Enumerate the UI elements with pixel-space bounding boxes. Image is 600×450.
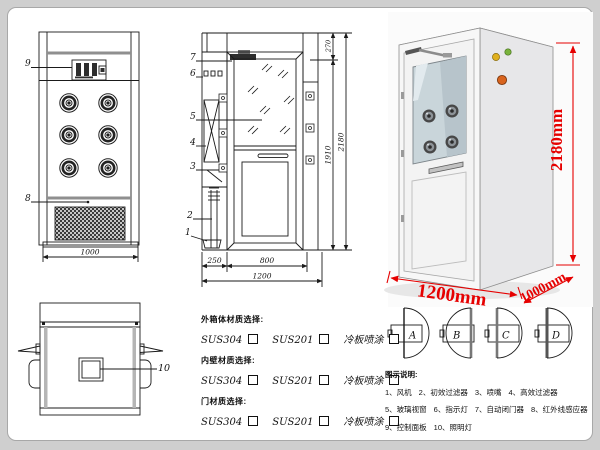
material-checkbox[interactable] bbox=[319, 375, 329, 385]
front-base bbox=[43, 242, 138, 247]
dim-inner-height: 1910 bbox=[324, 145, 333, 164]
dim-top-section: 270 bbox=[325, 40, 333, 53]
material-checkbox[interactable] bbox=[248, 375, 258, 385]
legend-row: 9、控制面板10、照明灯 bbox=[385, 422, 590, 433]
legend-item: 4、高效过滤器 bbox=[509, 388, 558, 397]
filter-box bbox=[204, 100, 219, 162]
callout-5: 5 bbox=[190, 112, 196, 122]
air-return-grille bbox=[55, 207, 125, 240]
dim-door-width: 800 bbox=[260, 256, 275, 265]
material-option-label: 冷板喷涂 bbox=[343, 417, 383, 428]
material-option-label: SUS304 bbox=[201, 417, 242, 428]
left-handle bbox=[29, 360, 40, 388]
dim-total-width: 1200 bbox=[252, 272, 271, 281]
callout-6: 6 bbox=[190, 69, 196, 79]
material-option-label: SUS201 bbox=[272, 335, 313, 346]
callout-4: 4 bbox=[189, 138, 196, 148]
legend-item: 10、照明灯 bbox=[434, 423, 472, 432]
callout-3: 3 bbox=[190, 162, 196, 172]
door-option-b: B bbox=[440, 308, 474, 358]
material-checkbox[interactable] bbox=[248, 334, 258, 344]
emergency-button bbox=[497, 75, 506, 84]
legend-item: 8、红外线感应器 bbox=[531, 405, 588, 414]
door-option-c: C bbox=[485, 308, 522, 358]
front-view: 9 8 1000 bbox=[25, 32, 139, 262]
indicator-lamp-yellow bbox=[492, 53, 499, 60]
material-option-label: 冷板喷涂 bbox=[343, 335, 383, 346]
top-view: 10 bbox=[18, 303, 170, 415]
legend-row: 5、玻璃视窗6、指示灯7、自动闭门器8、红外线感应器 bbox=[385, 404, 590, 415]
material-checkbox[interactable] bbox=[319, 334, 329, 344]
door-option-a-label: A bbox=[408, 331, 416, 342]
callout-8: 8 bbox=[25, 194, 31, 204]
duct-pipe bbox=[208, 188, 220, 248]
height-dimensions: 270 1910 2180 bbox=[310, 33, 352, 250]
legend-item: 3、喷嘴 bbox=[475, 388, 502, 397]
door bbox=[227, 52, 303, 250]
callout-7: 7 bbox=[190, 53, 196, 63]
material-option-label: 冷板喷涂 bbox=[343, 376, 383, 387]
legend: 图示说明: 1、风机2、初效过滤器3、喷嘴4、高效过滤器 5、玻璃视窗6、指示灯… bbox=[385, 369, 590, 433]
material-options-row: SUS304SUS201冷板喷涂 bbox=[201, 372, 381, 387]
legend-item: 2、初效过滤器 bbox=[419, 388, 468, 397]
dim-total-height: 2180 bbox=[337, 132, 346, 152]
material-checkbox[interactable] bbox=[248, 416, 258, 426]
material-checkbox[interactable] bbox=[389, 334, 399, 344]
material-option-label: SUS201 bbox=[272, 376, 313, 387]
side-section-view: 7 6 5 4 3 2 1 270 1910 2180 bbox=[185, 33, 352, 287]
left-latch bbox=[18, 346, 40, 353]
legend-row: 1、风机2、初效过滤器3、喷嘴4、高效过滤器 bbox=[385, 387, 590, 398]
callout-1: 1 bbox=[185, 228, 191, 238]
legend-item: 9、控制面板 bbox=[385, 423, 427, 432]
material-option-label: SUS201 bbox=[272, 417, 313, 428]
legend-item: 7、自动闭门器 bbox=[475, 405, 524, 414]
callout-2: 2 bbox=[186, 211, 193, 221]
door-handle bbox=[258, 154, 288, 158]
indicator-lamp-green bbox=[505, 49, 511, 55]
material-selection: 外箱体材质选择: SUS304SUS201冷板喷涂 内壁材质选择: SUS304… bbox=[201, 314, 381, 428]
door-option-d: D bbox=[535, 308, 572, 358]
door-option-c-label: C bbox=[502, 331, 510, 342]
material-options-row: SUS304SUS201冷板喷涂 bbox=[201, 331, 381, 346]
svg-text:1000: 1000 bbox=[80, 248, 99, 257]
legend-title: 图示说明: bbox=[385, 369, 590, 380]
observation-window bbox=[79, 358, 103, 381]
front-width-dimension: 1000 bbox=[43, 247, 138, 262]
front-nozzles bbox=[60, 94, 117, 177]
side-callouts: 7 6 5 4 3 2 1 bbox=[185, 53, 196, 238]
legend-item: 5、玻璃视窗 bbox=[385, 405, 427, 414]
right-latch bbox=[140, 346, 163, 353]
material-option-label: SUS304 bbox=[201, 376, 242, 387]
render-3d: 2180mm 1200mm 1000mm bbox=[384, 12, 593, 311]
material-group-title: 内壁材质选择: bbox=[201, 355, 381, 366]
material-options-row: SUS304SUS201冷板喷涂 bbox=[201, 413, 381, 428]
dim-left-depth: 250 bbox=[206, 256, 222, 265]
width-dimensions: 250 800 1200 bbox=[202, 252, 322, 287]
door-option-d-label: D bbox=[551, 331, 560, 342]
legend-item: 1、风机 bbox=[385, 388, 412, 397]
material-checkbox[interactable] bbox=[319, 416, 329, 426]
control-panel bbox=[72, 60, 106, 80]
callout-10: 10 bbox=[158, 363, 170, 374]
door-option-b-label: B bbox=[452, 331, 460, 342]
right-handle bbox=[140, 360, 151, 388]
base-pedestal bbox=[203, 240, 221, 248]
material-option-label: SUS304 bbox=[201, 335, 242, 346]
cabinet-right-face bbox=[480, 28, 553, 290]
material-group-title: 外箱体材质选择: bbox=[201, 314, 381, 325]
dim-height-label: 2180mm bbox=[547, 109, 566, 171]
door-swing-options: A B C D bbox=[388, 308, 572, 358]
glass-hatching bbox=[248, 64, 294, 134]
callout-9: 9 bbox=[25, 59, 31, 69]
material-group-title: 门材质选择: bbox=[201, 396, 381, 407]
legend-item: 6、指示灯 bbox=[434, 405, 468, 414]
door-option-a: A bbox=[388, 308, 429, 358]
